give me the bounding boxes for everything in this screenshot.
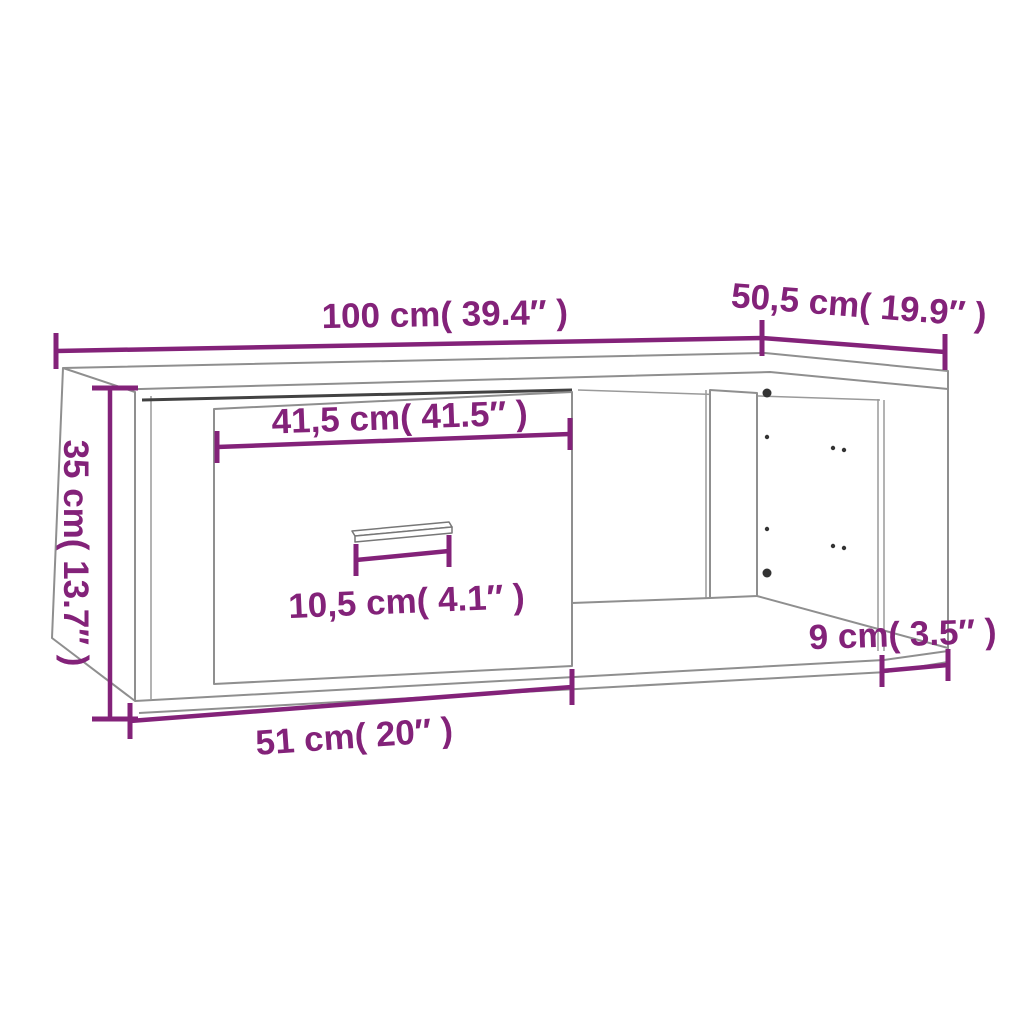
pin-hole <box>765 435 769 439</box>
dimension-line <box>130 687 572 721</box>
dimension-label-drawer-bottom-width: 51 cm( 20″ ) <box>254 710 454 763</box>
dimension-label-side-recess: 9 cm( 3.5″ ) <box>808 612 997 658</box>
pin-hole <box>831 446 835 450</box>
divider-panel <box>710 390 757 598</box>
dimension-line <box>762 338 945 352</box>
diagram-svg: 100 cm( 39.4″ ) 50,5 cm( 19.9″ ) 35 cm( … <box>0 0 1024 1024</box>
cam-hole <box>763 389 772 398</box>
dimension-line <box>882 665 948 671</box>
compartment-floor-edge <box>572 598 710 603</box>
dimension-label-depth: 50,5 cm( 19.9″ ) <box>730 276 988 335</box>
right-inner-wall-edge <box>878 399 884 651</box>
furniture-dimension-diagram: 100 cm( 39.4″ ) 50,5 cm( 19.9″ ) 35 cm( … <box>0 0 1024 1024</box>
dimension-label-height: 35 cm( 13.7″ ) <box>56 440 95 667</box>
tabletop-front-band <box>66 372 948 391</box>
dimension-label-overall-width: 100 cm( 39.4″ ) <box>321 293 568 336</box>
pin-hole <box>831 544 835 548</box>
pin-hole <box>765 527 769 531</box>
cam-hole <box>763 569 772 578</box>
dimension-depth: 50,5 cm( 19.9″ ) <box>730 276 988 370</box>
pin-hole <box>842 546 846 550</box>
back-panel-holes <box>763 389 847 578</box>
dimension-line <box>56 338 762 351</box>
dimension-drawer-bottom-width: 51 cm( 20″ ) <box>130 669 572 763</box>
pin-hole <box>842 448 846 452</box>
dimension-overall-width: 100 cm( 39.4″ ) <box>56 293 762 369</box>
